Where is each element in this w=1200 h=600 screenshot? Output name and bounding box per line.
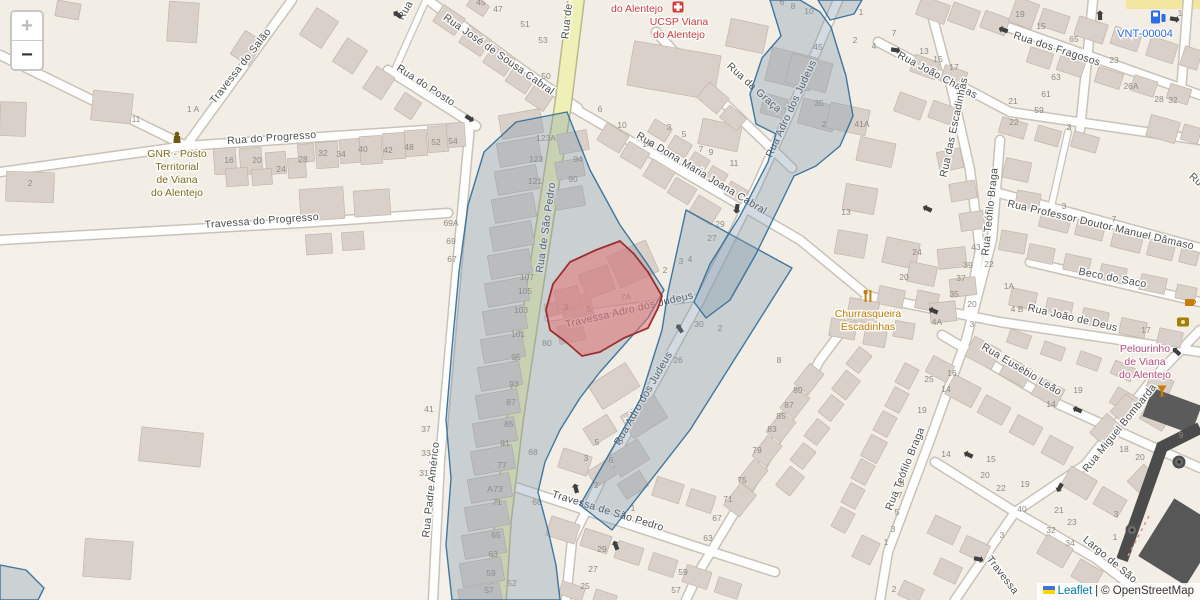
housenumber: 67 [712, 513, 722, 523]
housenumber: 35 [949, 289, 959, 299]
housenumber: 43 [971, 242, 981, 252]
housenumber: 24 [276, 164, 286, 174]
poi-label: do Alentejo [1119, 369, 1171, 381]
housenumber: 15 [1036, 21, 1046, 31]
housenumber: 18 [1119, 444, 1129, 454]
housenumber: 53 [538, 35, 548, 45]
housenumber: 59 [1034, 105, 1044, 115]
housenumber: 20 [252, 155, 262, 165]
poi-label: UCSP Viana [650, 16, 709, 28]
poi-label: GNR - Posto [147, 148, 207, 160]
housenumber: 50 [541, 71, 551, 81]
housenumber: 21 [1008, 96, 1018, 106]
map-canvas[interactable]: Travessa do SalãoRua do ProgressoTravess… [0, 0, 1200, 600]
housenumber: 19 [1073, 385, 1083, 395]
housenumber: 9 [900, 479, 905, 489]
housenumber: 11 [730, 158, 739, 168]
housenumber: 7 [892, 28, 897, 38]
leaflet-link[interactable]: Leaflet [1058, 585, 1093, 597]
poi-label: do Alentejo [151, 187, 203, 199]
housenumber: 19 [1020, 479, 1030, 489]
housenumber: 24 [912, 247, 922, 257]
housenumber: 54 [448, 136, 458, 146]
housenumber: 33 [421, 448, 431, 458]
housenumber: 23 [1109, 55, 1119, 65]
housenumber: 5 [895, 507, 900, 517]
poi-label: Pelourinho [1120, 343, 1170, 355]
housenumber: 22 [984, 259, 994, 269]
housenumber: 41 [424, 404, 434, 414]
housenumber: 37 [421, 424, 431, 434]
housenumber: 22 [1009, 117, 1019, 127]
housenumber: 26A [1123, 81, 1138, 91]
housenumber: 5 [595, 437, 600, 447]
housenumber: 1A [1004, 281, 1015, 291]
housenumber: 3 [584, 453, 589, 463]
housenumber: 3 [891, 524, 896, 534]
housenumber: 14 [1046, 399, 1056, 409]
housenumber: 9 [1179, 430, 1184, 440]
housenumber: 2 [892, 584, 897, 594]
map-svg: Travessa do SalãoRua do ProgressoTravess… [0, 0, 1200, 600]
housenumber: 14 [941, 384, 951, 394]
housenumber: 5 [682, 129, 687, 139]
gold-icon [1177, 318, 1189, 327]
housenumber: 1 [884, 537, 889, 547]
poi-label: de Viana [1124, 356, 1165, 368]
housenumber: 3 [970, 319, 975, 329]
housenumber: 29 [597, 544, 607, 554]
housenumber: 65 [1069, 34, 1079, 44]
housenumber: 47 [493, 4, 503, 14]
housenumber: 7 [699, 144, 704, 154]
housenumber: 20 [899, 272, 909, 282]
housenumber: 1 [1113, 532, 1118, 542]
housenumber: 22 [996, 483, 1006, 493]
housenumber: 25 [580, 581, 590, 591]
attribution-bar: Leaflet|© OpenStreetMap [1037, 583, 1200, 600]
housenumber: 2 [853, 35, 858, 45]
housenumber: 2 [663, 265, 668, 275]
housenumber: 45 [476, 0, 486, 7]
housenumber: 89 [793, 385, 803, 395]
housenumber: 11 [132, 114, 141, 124]
housenumber: 39 [963, 260, 973, 270]
housenumber: 40 [358, 144, 368, 154]
housenumber: 20 [967, 299, 977, 309]
housenumber: 16 [947, 368, 957, 378]
ukraine-flag-icon [1043, 586, 1055, 594]
housenumber: 51 [520, 19, 530, 29]
attribution-separator: | [1095, 585, 1098, 597]
housenumber: 13 [919, 46, 929, 56]
housenumber: 79 [752, 445, 762, 455]
housenumber: 31 [419, 468, 429, 478]
housenumber: 85 [776, 411, 786, 421]
housenumber: 13 [841, 207, 851, 217]
housenumber: 75 [737, 475, 747, 485]
housenumber: 4 [872, 41, 877, 51]
zoom-out-button[interactable]: − [12, 41, 42, 69]
housenumber: 10 [617, 120, 627, 130]
housenumber: 19 [917, 405, 927, 415]
housenumber: 57 [671, 585, 681, 595]
housenumber: 37 [956, 273, 966, 283]
housenumber: 9 [709, 147, 714, 157]
poi-label: do Alentejo [611, 3, 663, 15]
housenumber: 32 [318, 148, 328, 158]
housenumber: 32 [1046, 525, 1056, 535]
housenumber: 83 [767, 424, 777, 434]
housenumber: 4 B [1011, 304, 1024, 314]
housenumber: 14 [941, 449, 951, 459]
housenumber: 1 [859, 7, 864, 17]
housenumber: 17 [949, 62, 959, 72]
housenumber: 3 [667, 122, 672, 132]
housenumber: 23 [1067, 517, 1077, 527]
housenumber: 15 [986, 454, 996, 464]
poi-label: do Alentejo [653, 29, 705, 41]
housenumber: 63 [1051, 72, 1061, 82]
housenumber: 71 [723, 494, 733, 504]
housenumber: 3 [1000, 530, 1005, 540]
housenumber: 3 [1062, 201, 1067, 211]
housenumber: 20 [1135, 452, 1145, 462]
monument-circle-icon [1126, 524, 1139, 537]
housenumber: 28 [298, 154, 308, 164]
housenumber: 6 [598, 104, 603, 114]
housenumber: 20 [980, 470, 990, 480]
housenumber: 17 [1141, 325, 1151, 335]
housenumber: 63 [703, 533, 713, 543]
housenumber: 3 [1067, 122, 1072, 132]
housenumber: 34 [336, 149, 346, 159]
poi-label: Churrasqueira [835, 308, 902, 320]
housenumber: 59 [678, 567, 688, 577]
poi-label: Territorial [155, 161, 198, 173]
zoom-in-button[interactable]: + [12, 12, 42, 41]
housenumber: 40 [1017, 504, 1027, 514]
housenumber: 41A [854, 119, 869, 129]
housenumber: 42 [383, 145, 393, 155]
housenumber: 8 [777, 355, 782, 365]
housenumber: 27 [588, 564, 598, 574]
housenumber: 7 [1112, 214, 1117, 224]
housenumber: 28 [1154, 94, 1164, 104]
housenumber: 69 [446, 236, 456, 246]
housenumber: 19 [1015, 9, 1025, 19]
housenumber: 34 [1065, 538, 1075, 548]
poi-label: VNT-00004 [1117, 28, 1173, 40]
zoom-control: + − [10, 10, 44, 71]
clinic-icon [673, 2, 684, 13]
housenumber: 69A [443, 218, 458, 228]
monument-circle-icon [1173, 456, 1186, 469]
poi-label: Escadinhas [841, 321, 895, 333]
housenumber: 61 [1041, 89, 1051, 99]
housenumber: 15 [933, 54, 943, 64]
poi-label: de Viana [156, 174, 197, 186]
cafe-icon [1185, 299, 1196, 306]
housenumber: 52 [431, 137, 441, 147]
housenumber: 2 [28, 178, 33, 188]
housenumber: 25 [924, 374, 934, 384]
openstreetmap-link[interactable]: © OpenStreetMap [1101, 585, 1194, 597]
housenumber: 14 [642, 139, 652, 149]
housenumber: 3 [1114, 509, 1119, 519]
housenumber: 4A [932, 317, 943, 327]
housenumber: 67 [447, 254, 457, 264]
housenumber: 48 [404, 142, 414, 152]
housenumber: 1 A [187, 104, 200, 114]
housenumber: 1 [1178, 8, 1183, 18]
housenumber: 16 [224, 155, 234, 165]
housenumber: 87 [784, 400, 794, 410]
housenumber: 32 [1168, 95, 1178, 105]
housenumber: 7 [898, 490, 903, 500]
housenumber: 21 [1054, 505, 1064, 515]
